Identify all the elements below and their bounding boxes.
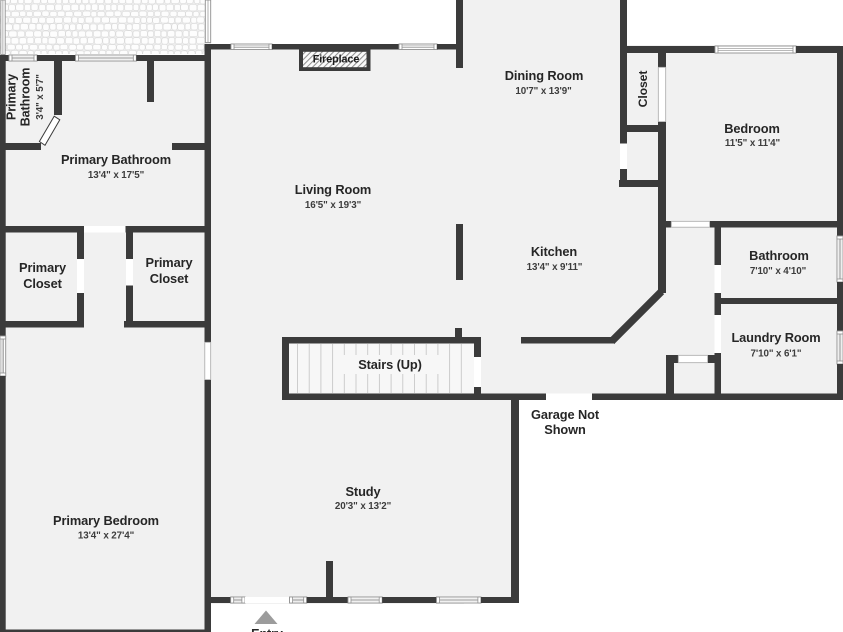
svg-text:Closet: Closet: [23, 276, 62, 291]
svg-text:Bathroom: Bathroom: [749, 248, 809, 263]
svg-text:Study: Study: [345, 484, 381, 499]
svg-text:13'4" x 27'4": 13'4" x 27'4": [78, 531, 134, 542]
svg-text:20'3" x 13'2": 20'3" x 13'2": [335, 501, 391, 512]
svg-text:Primary: Primary: [5, 74, 19, 120]
svg-text:Entry: Entry: [251, 627, 283, 632]
svg-text:13'4" x 17'5": 13'4" x 17'5": [88, 170, 144, 181]
svg-text:Garage Not: Garage Not: [531, 407, 600, 422]
svg-text:Bedroom: Bedroom: [724, 121, 779, 136]
svg-text:Shown: Shown: [544, 422, 586, 437]
svg-text:7'10" x 6'1": 7'10" x 6'1": [751, 349, 802, 360]
svg-text:13'4" x 9'11": 13'4" x 9'11": [527, 262, 583, 273]
svg-text:10'7" x 13'9": 10'7" x 13'9": [515, 86, 571, 97]
svg-text:Bathroom: Bathroom: [19, 68, 33, 127]
svg-text:Laundry Room: Laundry Room: [731, 330, 820, 345]
svg-text:Closet: Closet: [150, 271, 189, 286]
svg-text:Closet: Closet: [636, 71, 650, 108]
svg-text:Primary Bathroom: Primary Bathroom: [61, 152, 171, 167]
svg-text:3'4" x 5'7": 3'4" x 5'7": [35, 74, 46, 120]
svg-text:Living Room: Living Room: [295, 182, 371, 197]
svg-text:Dining Room: Dining Room: [505, 68, 584, 83]
svg-text:Kitchen: Kitchen: [531, 244, 578, 259]
svg-text:Stairs (Up): Stairs (Up): [358, 357, 422, 372]
svg-text:Primary: Primary: [146, 255, 194, 270]
svg-text:16'5" x 19'3": 16'5" x 19'3": [305, 200, 361, 211]
svg-text:Fireplace: Fireplace: [313, 54, 360, 66]
svg-text:11'5" x 11'4": 11'5" x 11'4": [725, 138, 780, 149]
svg-text:7'10" x 4'10": 7'10" x 4'10": [750, 266, 806, 277]
svg-text:Primary Bedroom: Primary Bedroom: [53, 513, 159, 528]
svg-text:Primary: Primary: [19, 260, 67, 275]
